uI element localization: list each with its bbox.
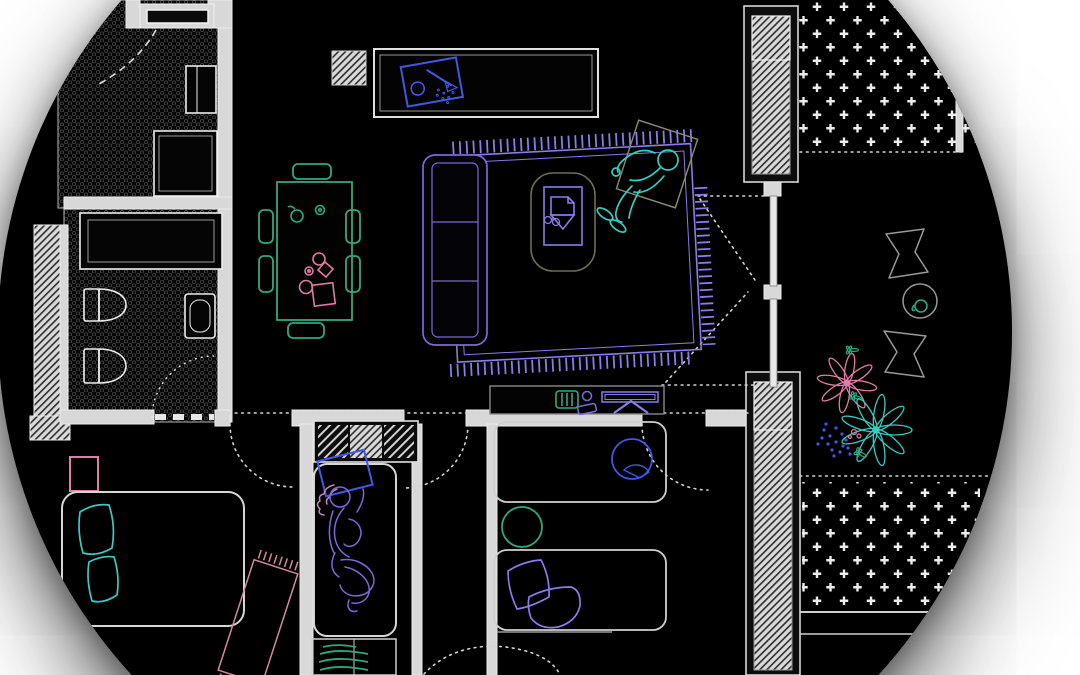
kids-room-left-wall	[487, 424, 497, 675]
bathroom-lower-bottom-wall	[60, 410, 154, 424]
balcony-edges	[800, 612, 960, 634]
entry-door-leaf	[147, 10, 208, 23]
round-pillow	[612, 439, 652, 479]
bedroom-left-door-arc	[230, 424, 293, 487]
french-door-leaf-top	[770, 196, 777, 286]
rug-fringe-top	[452, 135, 694, 148]
paper-icon	[551, 197, 574, 215]
runner-rug	[216, 553, 300, 675]
floor-plan-drawing	[0, 0, 1012, 675]
cup	[912, 300, 927, 312]
plants	[816, 345, 912, 466]
envelope-flap	[551, 215, 574, 229]
glasses-icon	[545, 217, 560, 226]
round-table	[903, 284, 937, 318]
bedroom-middle-furniture	[312, 421, 418, 675]
circular-crop	[0, 0, 1012, 675]
double-bed	[62, 492, 244, 626]
foot	[595, 206, 614, 223]
nightstand	[70, 457, 98, 491]
lounging-person-group	[595, 120, 697, 234]
balcony-paving	[799, 0, 980, 610]
blankets	[508, 560, 580, 628]
chair-top	[293, 164, 331, 179]
sleeping-person	[318, 485, 374, 611]
rug-fringe-bottom	[450, 358, 694, 371]
chair-left-2	[259, 256, 273, 292]
column	[332, 51, 366, 85]
dining-table	[277, 182, 352, 320]
plus-paving-bottom	[802, 482, 980, 610]
green-books	[319, 645, 368, 670]
floor-plan-image	[0, 0, 1080, 675]
blue-petals	[816, 422, 851, 457]
kids-room-furniture	[490, 386, 666, 632]
french-door-block-mid	[764, 285, 781, 299]
kids-bed-2	[494, 550, 666, 630]
balcony-furniture	[884, 229, 937, 377]
pink-flower	[817, 353, 878, 414]
lounge-chair-1	[886, 229, 928, 278]
balcony-rail-top	[956, 0, 963, 152]
teal-flower	[840, 394, 912, 467]
reading-tray	[544, 187, 582, 245]
lounge-chair-2	[884, 331, 926, 377]
person-head	[330, 487, 350, 507]
pillow	[88, 557, 118, 602]
person-foot	[348, 600, 357, 611]
bathtub	[80, 213, 222, 269]
person-arm	[344, 519, 361, 546]
lounging-person	[595, 150, 678, 234]
chair-left-1	[259, 210, 273, 243]
plus-paving-top	[799, 0, 979, 150]
pillow	[79, 505, 113, 555]
chair-bottom	[288, 323, 324, 338]
kids-bed-1	[494, 422, 666, 502]
round-rug	[502, 507, 542, 547]
person-head	[658, 150, 678, 170]
french-door-leaf-bottom	[770, 299, 777, 387]
french-door-swing-top	[700, 199, 757, 283]
sofa	[423, 155, 487, 345]
bedroom-left-right-wall	[300, 424, 313, 675]
french-door-block-top	[764, 182, 781, 196]
bathroom-divider-wall	[64, 197, 232, 209]
shower	[154, 131, 217, 196]
desk	[490, 386, 664, 415]
bathroom-right-wall	[218, 0, 232, 422]
ottoman	[531, 173, 595, 271]
entry-door-jamb-left	[126, 0, 140, 28]
left-exterior-wall	[34, 225, 60, 421]
dining-set	[259, 164, 360, 338]
sink	[186, 66, 216, 113]
shelf-unit	[312, 639, 396, 675]
bedroom-left-furniture	[62, 457, 300, 675]
